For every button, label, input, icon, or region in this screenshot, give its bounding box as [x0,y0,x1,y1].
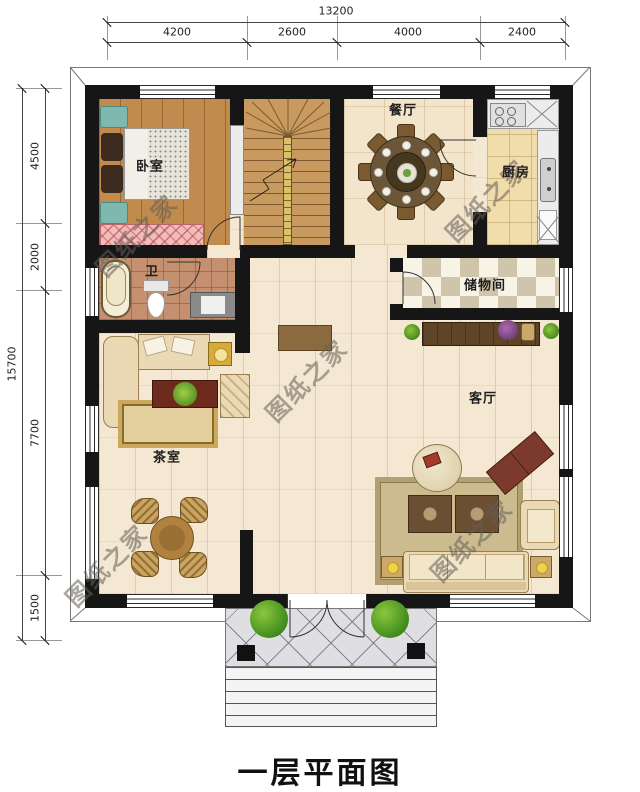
nightstand [100,106,128,128]
window [85,487,99,579]
lamp [387,562,399,574]
toilet-tank [143,280,169,292]
wall-segment [390,308,560,320]
plate [382,148,391,157]
window [85,406,99,452]
eave-line [590,67,591,622]
room-label-storage: 储物间 [464,280,506,293]
wall-segment [535,594,573,608]
tea-armchair [220,374,250,418]
sofa-side-table [381,556,403,578]
plate [402,141,411,150]
wall-segment [473,212,487,245]
bed-pillow [101,133,123,161]
plate [374,168,383,177]
plate [429,168,438,177]
rug-panel [408,495,452,533]
window [559,405,573,469]
window [127,594,213,608]
plate [402,195,411,204]
lamp [214,348,228,362]
living-sofa [403,551,529,593]
sofa-side-table [530,556,552,578]
sofa-cushions [409,554,525,580]
dim-left-seg-4: 1500 [29,594,42,622]
dim-top-seg-1: 4200 [163,26,191,39]
porch-bush [250,600,288,638]
kitchen-sink [540,158,556,202]
plant [173,382,197,406]
room-label-dining: 餐厅 [389,105,417,118]
wall-segment [330,99,344,245]
plant [404,324,420,340]
plate [421,187,430,196]
plant [543,323,559,339]
wall-segment [407,245,573,258]
rug-panel [455,495,499,533]
tea-table-chair [131,498,159,524]
dim-top-seg-2: 2600 [278,26,306,39]
room-label-bedroom: 卧室 [136,161,164,174]
eave-line [437,621,591,622]
sink-drain [547,167,551,171]
window [85,268,99,316]
entry-steps [225,667,437,727]
lamp [536,562,548,574]
stove [490,103,526,127]
dim-line-top-total [107,22,565,23]
wall-segment [240,245,355,258]
window [559,268,573,312]
entry-threshold [287,594,367,608]
room-label-tea: 茶室 [153,452,181,465]
eave-line [70,621,226,622]
porch-column [237,645,255,661]
wall-segment [240,530,253,594]
armchair-seat [527,509,555,543]
sofa-back [406,582,526,590]
window [559,477,573,557]
window [140,85,215,99]
wall-segment [473,99,487,137]
kitchen-appliance [539,210,557,240]
nightstand [100,202,128,224]
dim-top-seg-4: 2400 [508,26,536,39]
flower-vase [498,320,518,340]
plate [382,187,391,196]
window [373,85,440,99]
wall-segment [230,99,244,125]
tea-side-table [208,342,232,366]
burner [507,107,516,116]
room-label-bath: 卫 [145,266,159,279]
dining-centerpiece [397,163,417,183]
dim-line-left-segments [45,88,46,640]
eave-line [70,67,71,622]
dim-left-seg-2: 2000 [29,243,42,271]
burner [507,117,516,126]
dim-top-seg-3: 4000 [394,26,422,39]
dim-left-seg-1: 4500 [29,142,42,170]
drawing-title: 一层平面图 [238,748,403,792]
porch-column [407,643,425,659]
dim-left-total: 15700 [6,347,19,382]
bathtub-basin [106,266,126,306]
tea-table-top [159,525,185,551]
porch-bush [371,600,409,638]
dim-line-left-total [22,88,23,640]
tea-table-chair [131,551,159,577]
burner [495,117,504,126]
wall-segment [85,245,207,258]
window [450,594,535,608]
dim-top-total: 13200 [319,5,354,18]
window [495,85,550,99]
wall-segment [85,594,127,608]
washer-door [201,296,225,314]
sink-drain [547,187,551,191]
washer-unit [190,292,236,318]
vase [521,323,535,341]
wall-segment [235,258,250,353]
room-label-kitchen: 厨房 [502,167,530,180]
living-armchair [520,500,560,550]
wall-segment [390,258,403,272]
room-label-living: 客厅 [469,393,497,406]
floor-plan: 13200 4200 2600 4000 2400 15700 4500 200… [0,0,640,792]
bed-pillow [101,165,123,193]
eave-line [70,67,591,68]
plate [421,148,430,157]
hall-cabinet [278,325,332,351]
dim-left-seg-3: 7700 [29,419,42,447]
wall-segment [85,320,250,333]
burner [495,107,504,116]
wall-niche-shelf [230,125,244,215]
stair-railing [283,136,292,245]
